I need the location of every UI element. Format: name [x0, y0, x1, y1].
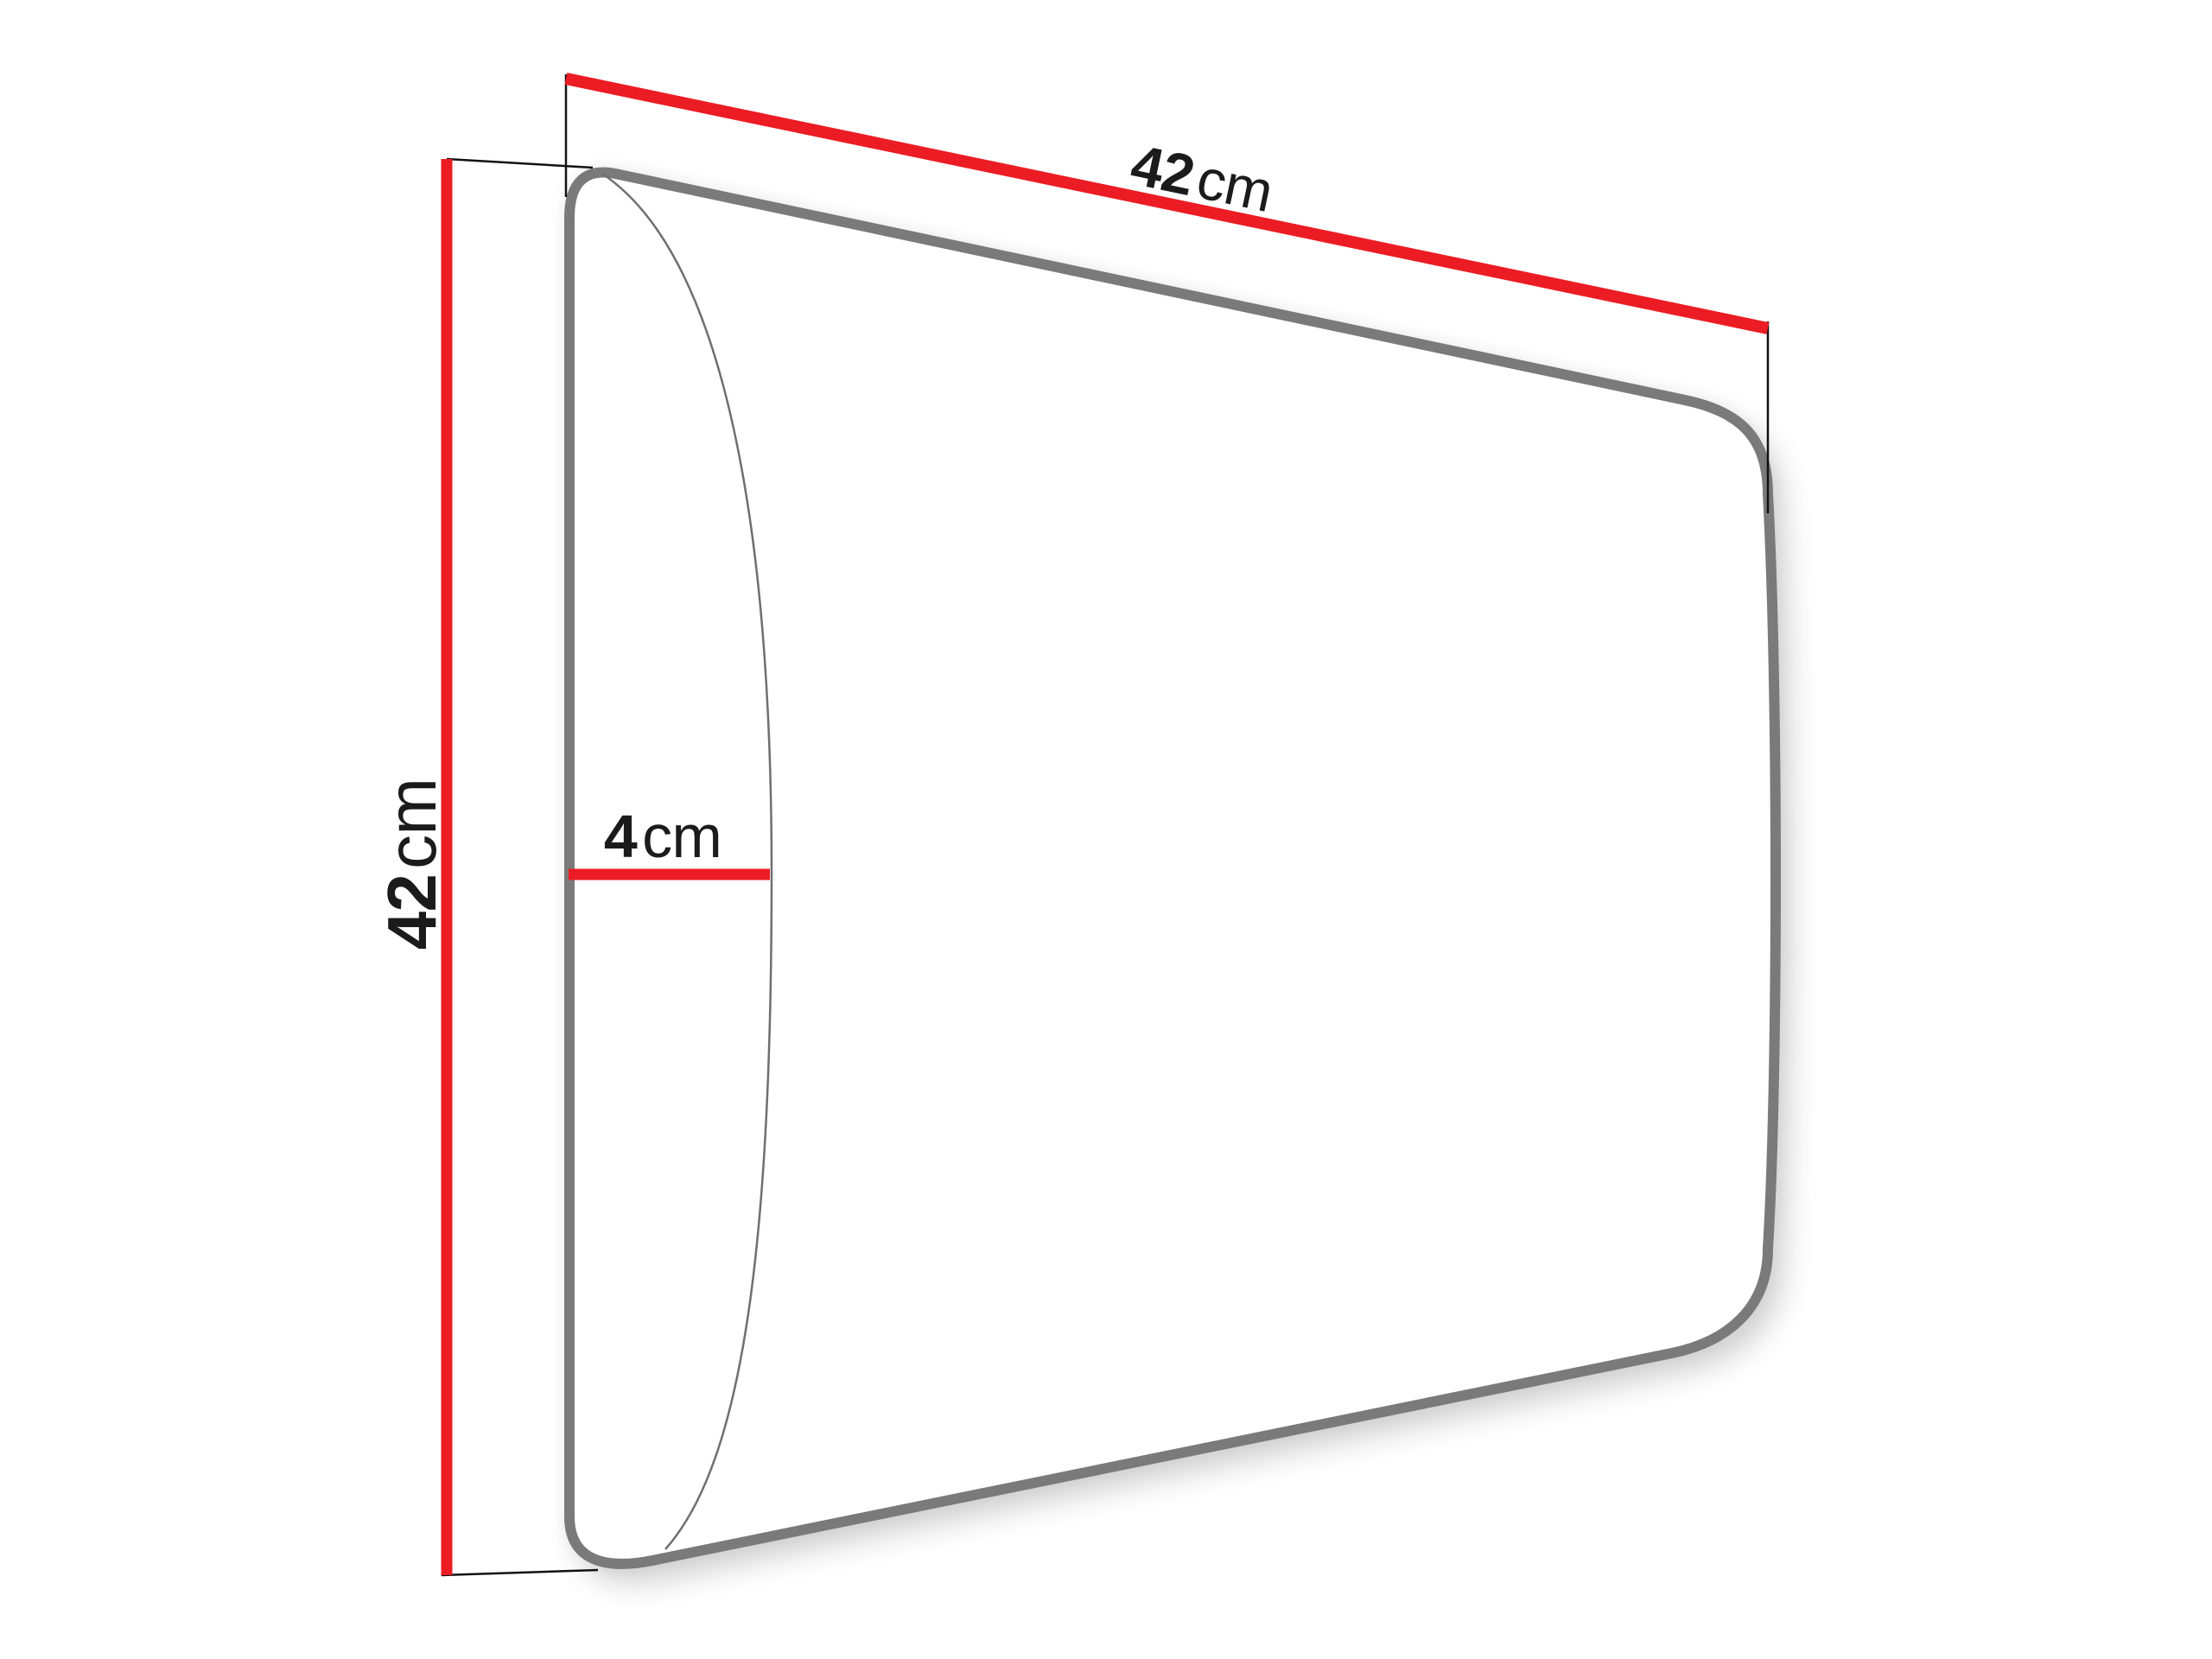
dimension-diagram: 42cm 42cm 4cm — [0, 0, 2212, 1659]
height-unit: cm — [373, 779, 450, 869]
extension-line-bottom-left-horizontal — [442, 1570, 598, 1575]
depth-value: 4 — [604, 803, 637, 870]
depth-unit: cm — [642, 803, 721, 870]
height-dimension-label: 42cm — [378, 779, 447, 950]
panel-drawing — [0, 0, 2212, 1659]
width-value: 42 — [1126, 132, 1200, 207]
depth-dimension-label: 4cm — [604, 806, 721, 867]
panel-outline — [569, 172, 1776, 1563]
height-value: 42 — [373, 874, 450, 950]
extension-line-top-left-horizontal — [447, 159, 593, 168]
